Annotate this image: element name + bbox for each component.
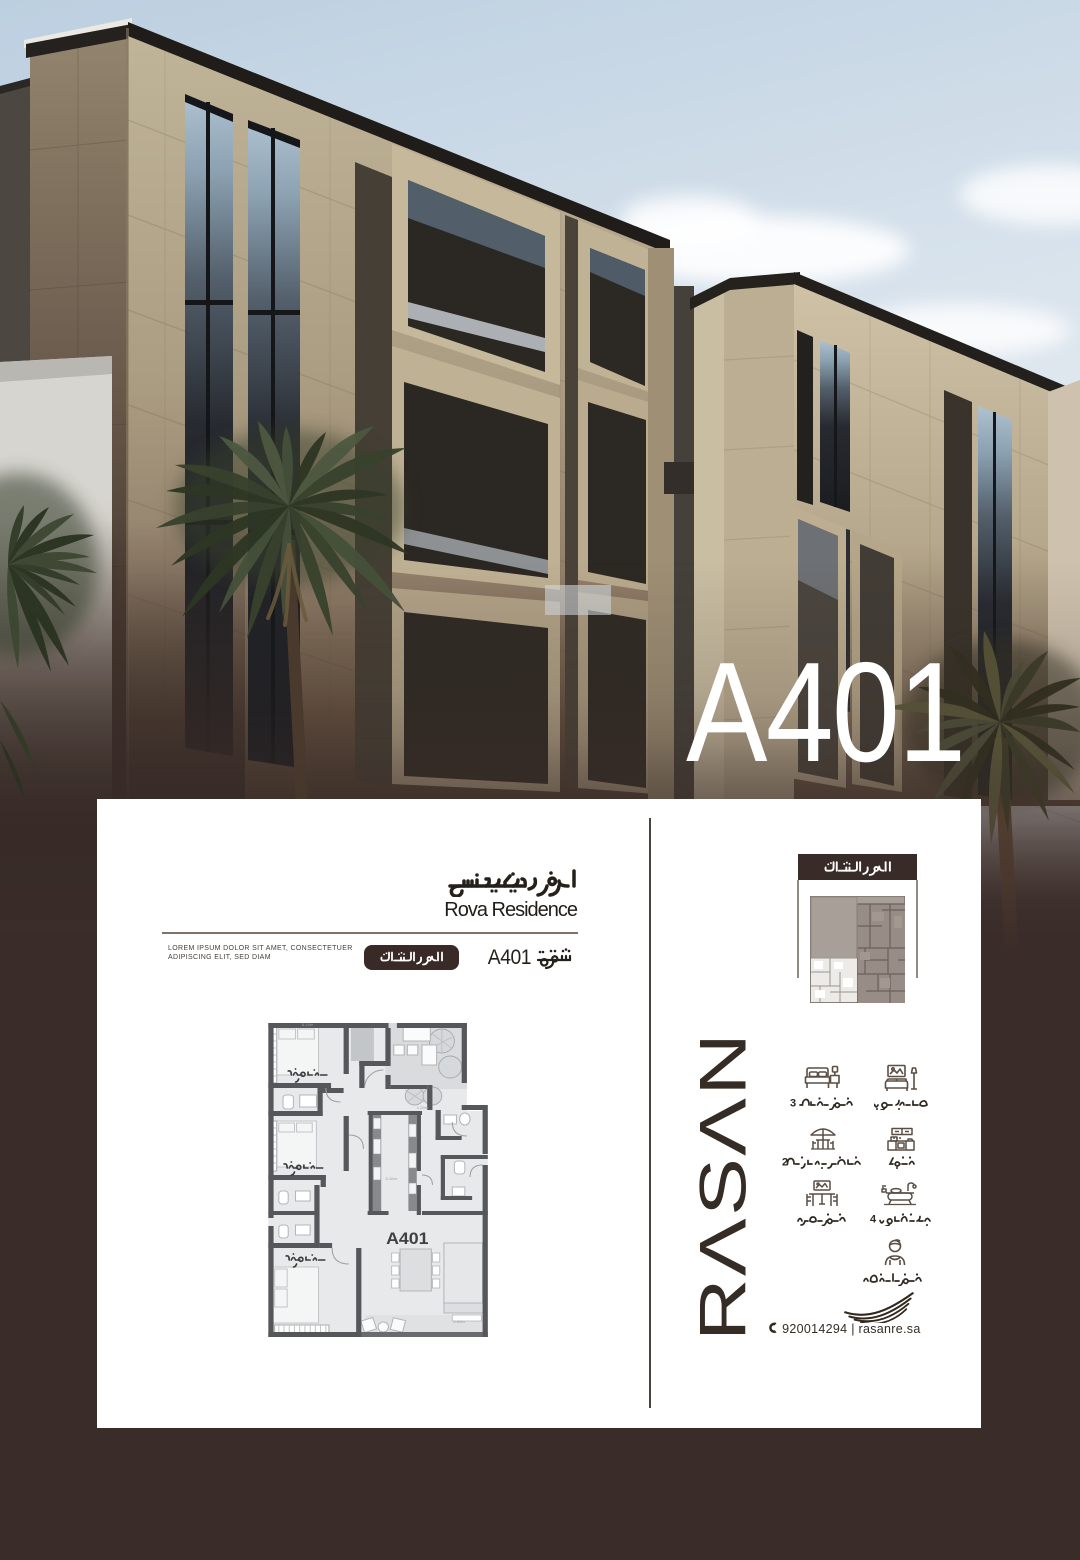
svg-text:3: 3 [790,1098,796,1110]
svg-text:5.10m: 5.10m [302,1022,314,1027]
svg-text:A401: A401 [386,1228,429,1248]
svg-text:3.10m: 3.10m [385,1176,397,1181]
svg-text:4: 4 [870,1214,877,1226]
svg-text:1.20m: 1.20m [417,1105,429,1110]
svg-text:2.90m: 2.90m [453,1319,465,1324]
